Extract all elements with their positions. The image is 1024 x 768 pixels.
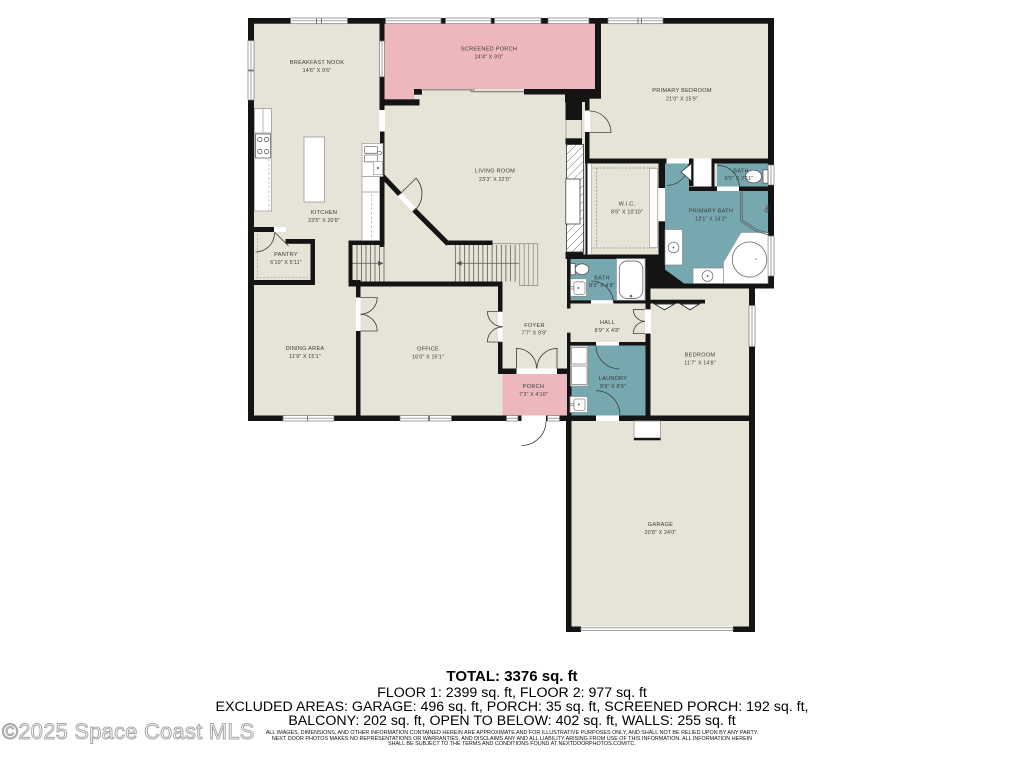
svg-text:PANTRY: PANTRY: [274, 252, 298, 258]
svg-text:23'3" X 22'0": 23'3" X 22'0": [479, 177, 511, 183]
svg-text:11'7" X 14'8": 11'7" X 14'8": [684, 361, 716, 367]
svg-text:OFFICE: OFFICE: [417, 347, 439, 353]
svg-text:SCREENED PORCH: SCREENED PORCH: [461, 47, 517, 53]
svg-text:PRIMARY BEDROOM: PRIMARY BEDROOM: [652, 88, 712, 94]
svg-text:12'1" X 14'2": 12'1" X 14'2": [695, 217, 727, 223]
svg-text:LIVING ROOM: LIVING ROOM: [475, 169, 515, 175]
svg-text:6'10" X 5'11": 6'10" X 5'11": [270, 260, 302, 266]
svg-text:BEDROOM: BEDROOM: [685, 353, 716, 359]
svg-text:7'3" X 4'10": 7'3" X 4'10": [519, 392, 548, 398]
svg-text:8'9" X 8'0": 8'9" X 8'0": [600, 384, 626, 390]
svg-text:DINING AREA: DINING AREA: [286, 346, 325, 352]
svg-text:11'9" X 15'1": 11'9" X 15'1": [289, 354, 321, 360]
svg-text:7'7" X 9'9": 7'7" X 9'9": [522, 331, 548, 337]
svg-text:BATH: BATH: [733, 169, 749, 175]
svg-text:8'9" X 4'8": 8'9" X 4'8": [589, 283, 615, 289]
svg-text:23'5" X 20'8": 23'5" X 20'8": [308, 218, 340, 224]
svg-text:PORCH: PORCH: [523, 384, 544, 390]
svg-text:PRIMARY BATH: PRIMARY BATH: [689, 209, 733, 215]
svg-text:16'0" X 15'1": 16'0" X 15'1": [412, 355, 444, 361]
svg-text:8'6" X 10'10": 8'6" X 10'10": [611, 210, 643, 216]
svg-text:24'4" X 9'0": 24'4" X 9'0": [475, 55, 504, 61]
svg-text:FOYER: FOYER: [524, 323, 545, 329]
svg-text:HALL: HALL: [600, 320, 615, 326]
svg-text:LAUNDRY: LAUNDRY: [599, 376, 627, 382]
svg-text:21'0" X 15'9": 21'0" X 15'9": [666, 97, 698, 103]
svg-text:20'8" X 24'0": 20'8" X 24'0": [645, 530, 677, 536]
svg-text:14'6" X 9'6": 14'6" X 9'6": [303, 68, 332, 74]
svg-text:W.I.C.: W.I.C.: [619, 202, 636, 208]
svg-text:BREAKFAST NOOK: BREAKFAST NOOK: [290, 60, 344, 66]
svg-text:8'9" X 4'8": 8'9" X 4'8": [595, 328, 621, 334]
svg-text:BATH: BATH: [594, 276, 610, 282]
svg-text:GARAGE: GARAGE: [648, 522, 673, 528]
svg-text:6'5" X 2'11": 6'5" X 2'11": [725, 176, 753, 182]
svg-text:KITCHEN: KITCHEN: [311, 210, 337, 216]
